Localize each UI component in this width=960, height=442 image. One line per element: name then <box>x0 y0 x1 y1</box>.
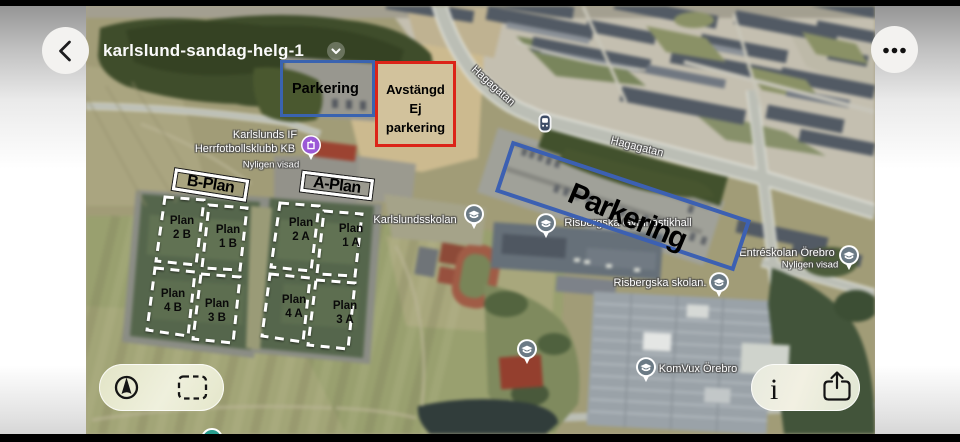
svg-text:i: i <box>770 373 778 406</box>
